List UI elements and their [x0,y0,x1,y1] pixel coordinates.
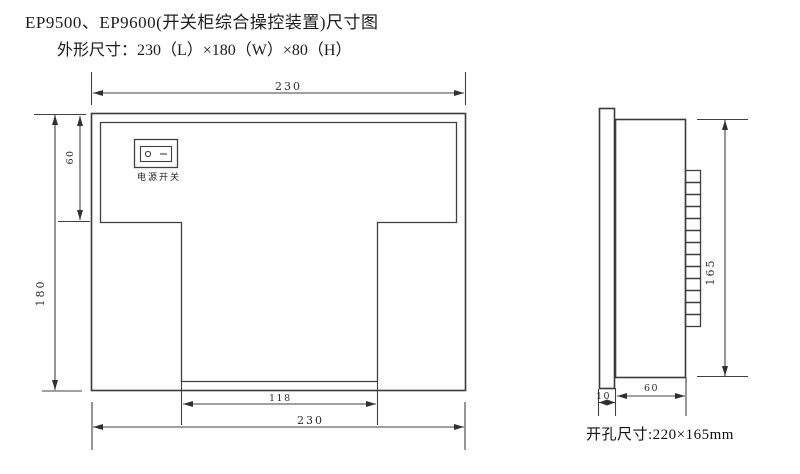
terminal-block [686,207,701,219]
terminal-block [686,183,701,195]
arrowhead-icon [52,380,58,390]
dimension-front-top-section: 60 [58,116,90,222]
terminal-block-strip [686,171,701,327]
arrowhead-icon [617,393,627,399]
terminal-block [686,219,701,231]
terminal-block [686,231,701,243]
arrowhead-icon [722,366,728,376]
arrowhead-icon [454,90,464,96]
front-outer-case [92,114,466,391]
arrowhead-icon [93,424,103,430]
side-view: 165 60 10 开孔尺寸:220×165mm [586,109,748,444]
cutout-size-note: 开孔尺寸:220×165mm [586,426,734,443]
terminal-block [686,291,701,303]
dimension-front-width-top: 230 [92,72,466,105]
terminal-block [686,315,701,327]
dimension-front-cutout-width: 118 [182,382,378,425]
arrowhead-icon [183,401,193,407]
drawing-svg: EP9500、EP9600(开关柜综合操控装置)尺寸图 外形尺寸：230（L）×… [0,0,800,474]
terminal-block [686,195,701,207]
dimension-side-depth: 60 [616,377,687,416]
overall-dimensions-subtitle: 外形尺寸：230（L）×180（W）×80（H） [57,41,351,59]
dim-value-front-cutout-width: 118 [269,393,292,404]
arrowhead-icon [93,90,103,96]
terminal-block [686,171,701,183]
arrowhead-icon [366,401,376,407]
arrowhead-icon [675,393,685,399]
dim-value-front-width-bottom: 230 [297,414,324,427]
dimension-side-flange: 10 [596,389,615,416]
power-switch-label: 电源开关 [137,171,181,182]
dim-value-side-flange: 10 [596,391,611,402]
dimension-drawing-page: EP9500、EP9600(开关柜综合操控装置)尺寸图 外形尺寸：230（L）×… [0,0,800,474]
arrowhead-icon [52,115,58,125]
dim-value-front-height: 180 [34,280,47,307]
terminal-block [686,303,701,315]
arrowhead-icon [722,120,728,130]
power-switch [135,140,178,168]
dim-value-front-width-top: 230 [275,80,302,93]
terminal-block [686,255,701,267]
terminal-block [686,279,701,291]
arrowhead-icon [454,424,464,430]
side-bezel-flange [600,109,615,389]
dim-value-side-height: 165 [704,259,717,286]
arrowhead-icon [77,116,83,126]
side-case-body [616,120,686,378]
dimension-front-height: 180 [34,115,86,392]
dimension-side-height: 165 [697,120,748,377]
dim-value-side-depth: 60 [644,383,659,394]
arrowhead-icon [77,210,83,220]
terminal-block [686,267,701,279]
terminal-block [686,243,701,255]
dimension-front-width-bottom: 230 [92,402,465,450]
power-switch-off-icon [145,151,150,156]
front-view: 电源开关 230 180 [34,72,466,450]
page-title: EP9500、EP9600(开关柜综合操控装置)尺寸图 [25,13,379,32]
dim-value-front-top-section: 60 [65,149,76,164]
